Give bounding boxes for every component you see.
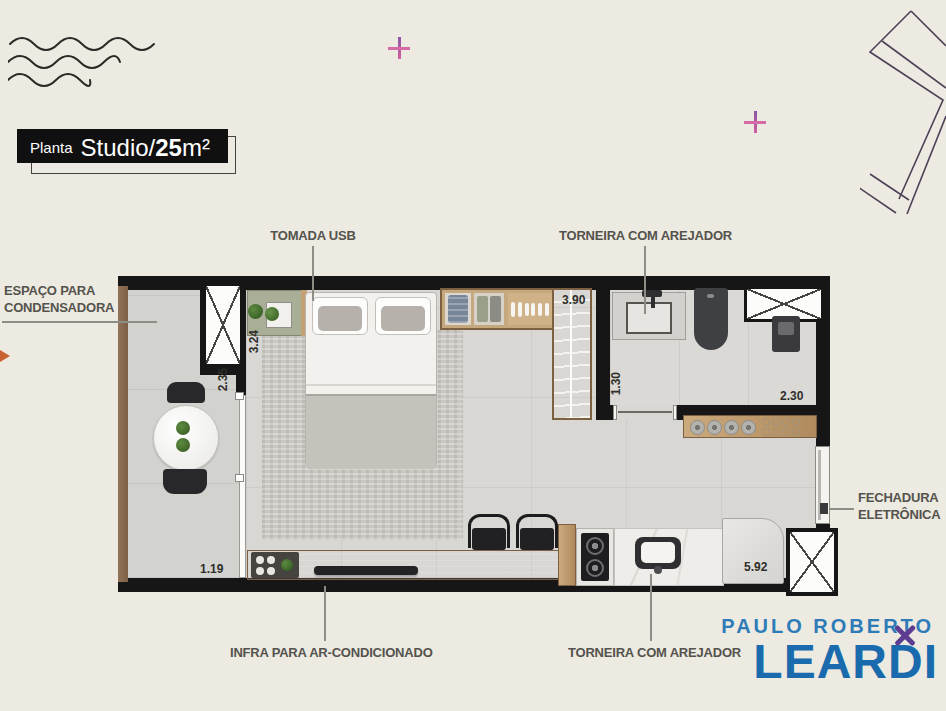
page: { "title": { "prefix": "Planta", "name":… — [0, 0, 946, 711]
callout-text: INFRA PARA AR-CONDICIONADO — [230, 645, 433, 660]
title-area-unit: m² — [182, 134, 210, 162]
burner-icon — [586, 559, 604, 577]
electronic-lock — [820, 503, 828, 514]
hanger-icon — [545, 303, 549, 316]
plate-icon — [690, 420, 705, 435]
bed-pillow-inner — [318, 306, 362, 331]
measure-line — [570, 290, 572, 418]
cup-icon — [772, 418, 780, 426]
bed-pillow-inner — [381, 306, 425, 331]
callout-text: FECHADURA — [858, 489, 942, 506]
cup-set — [762, 417, 806, 437]
callout-tomada-usb: TOMADA USB — [240, 227, 386, 244]
callout-text: CONDENSADORA — [4, 299, 114, 316]
dimension-label: 3.24 — [247, 330, 261, 353]
balcony-chair — [163, 469, 207, 494]
plant-icon — [176, 421, 190, 435]
cup-icon — [782, 418, 790, 426]
balcony-rail — [118, 286, 128, 582]
callout-infra: INFRA PARA AR-CONDICIONADO — [230, 644, 430, 661]
dining-chair-seat — [520, 528, 554, 550]
callout-text: ESPAÇO PARA — [4, 282, 114, 299]
hanging-shirt — [490, 296, 501, 322]
balcony-glass-door — [239, 395, 246, 578]
cup-icon — [792, 418, 800, 426]
bathroom-door-jamb — [613, 405, 617, 420]
tv — [314, 566, 418, 575]
shower-fixture-inner — [778, 322, 794, 335]
callout-text: TORNEIRA COM AREJADOR — [559, 228, 732, 243]
dimension-label: 2.30 — [780, 389, 803, 403]
closet-hanger-section — [508, 293, 552, 325]
shaft-hatch — [786, 528, 838, 596]
leader-line — [830, 508, 854, 510]
leader-line — [650, 574, 652, 641]
hanger-icon — [511, 302, 515, 317]
plant-icon — [265, 307, 279, 321]
floor-plan: 3.24 2.35 1.19 3.90 1.30 2.30 5.92 — [118, 266, 830, 592]
chevron-pattern-icon — [860, 0, 946, 215]
kitchen-sink-basin — [641, 542, 675, 563]
hanger-icon — [538, 303, 542, 316]
faucet-icon — [654, 566, 662, 574]
arrow-icon — [0, 347, 10, 365]
callout-torneira-top: TORNEIRA COM AREJADOR — [548, 227, 743, 244]
hanging-shirt — [477, 296, 488, 322]
plant-icon — [248, 304, 263, 319]
leader-line — [644, 246, 646, 314]
cup-icon — [772, 428, 780, 436]
shaft-hatch — [206, 286, 240, 364]
fridge — [722, 518, 784, 584]
leader-line — [324, 586, 326, 641]
folded-jeans — [448, 295, 468, 323]
hanger-icon — [518, 302, 522, 317]
cup-icon — [782, 428, 790, 436]
toilet-button — [707, 294, 714, 298]
plus-icon — [388, 37, 410, 59]
hanger-icon — [525, 303, 529, 316]
cup-icon — [792, 428, 800, 436]
tray-dot — [267, 556, 275, 564]
kitchen-cabinet — [558, 524, 576, 586]
plant-icon — [176, 438, 190, 452]
title-name: Studio/ — [81, 134, 156, 162]
callout-fechadura: FECHADURA ELETRÔNICA — [858, 489, 942, 523]
dimension-label: 5.92 — [744, 560, 767, 574]
bed-sheet-fold — [306, 384, 436, 386]
callout-text: TOMADA USB — [270, 228, 355, 243]
tray-dot — [256, 556, 264, 564]
burner-icon — [586, 537, 604, 555]
title-plate: Planta Studio/ 25 m² — [17, 129, 228, 163]
plant-icon — [281, 559, 293, 571]
title-area-value: 25 — [155, 134, 182, 162]
plate-icon — [741, 420, 756, 435]
cup-icon — [762, 428, 770, 436]
plate-icon — [707, 420, 722, 435]
bathroom-wall-left — [596, 276, 610, 420]
shelf-unit — [552, 288, 592, 420]
faucet-icon — [651, 295, 655, 308]
balcony-chair — [167, 382, 205, 403]
hanger-icon — [531, 303, 535, 316]
title-prefix: Planta — [30, 139, 73, 163]
leader-line — [312, 246, 314, 301]
dining-chair-seat — [472, 528, 506, 550]
door-handle — [235, 392, 244, 400]
dimension-label: 2.35 — [216, 368, 230, 391]
shaft-structure-stub — [236, 365, 246, 395]
bathroom-sink-basin — [626, 302, 672, 334]
plate-icon — [724, 420, 739, 435]
waves-icon — [8, 30, 168, 94]
callout-text: ELETRÔNICA — [858, 506, 942, 523]
dimension-label: 1.30 — [609, 372, 623, 395]
tray-dot — [256, 567, 264, 575]
logo-x-icon — [892, 622, 918, 648]
cup-icon — [762, 418, 770, 426]
plus-icon — [744, 111, 766, 133]
door-handle — [235, 474, 244, 482]
leader-line — [2, 321, 157, 323]
bathroom-door-leaf — [618, 411, 672, 413]
dimension-label: 1.19 — [200, 562, 223, 576]
tray-dot — [267, 567, 275, 575]
bathroom-door-jamb — [673, 405, 677, 420]
callout-espaco-condensadora: ESPAÇO PARA CONDENSADORA — [4, 282, 114, 316]
dimension-label: 3.90 — [562, 293, 585, 307]
bed-blanket — [306, 394, 436, 469]
